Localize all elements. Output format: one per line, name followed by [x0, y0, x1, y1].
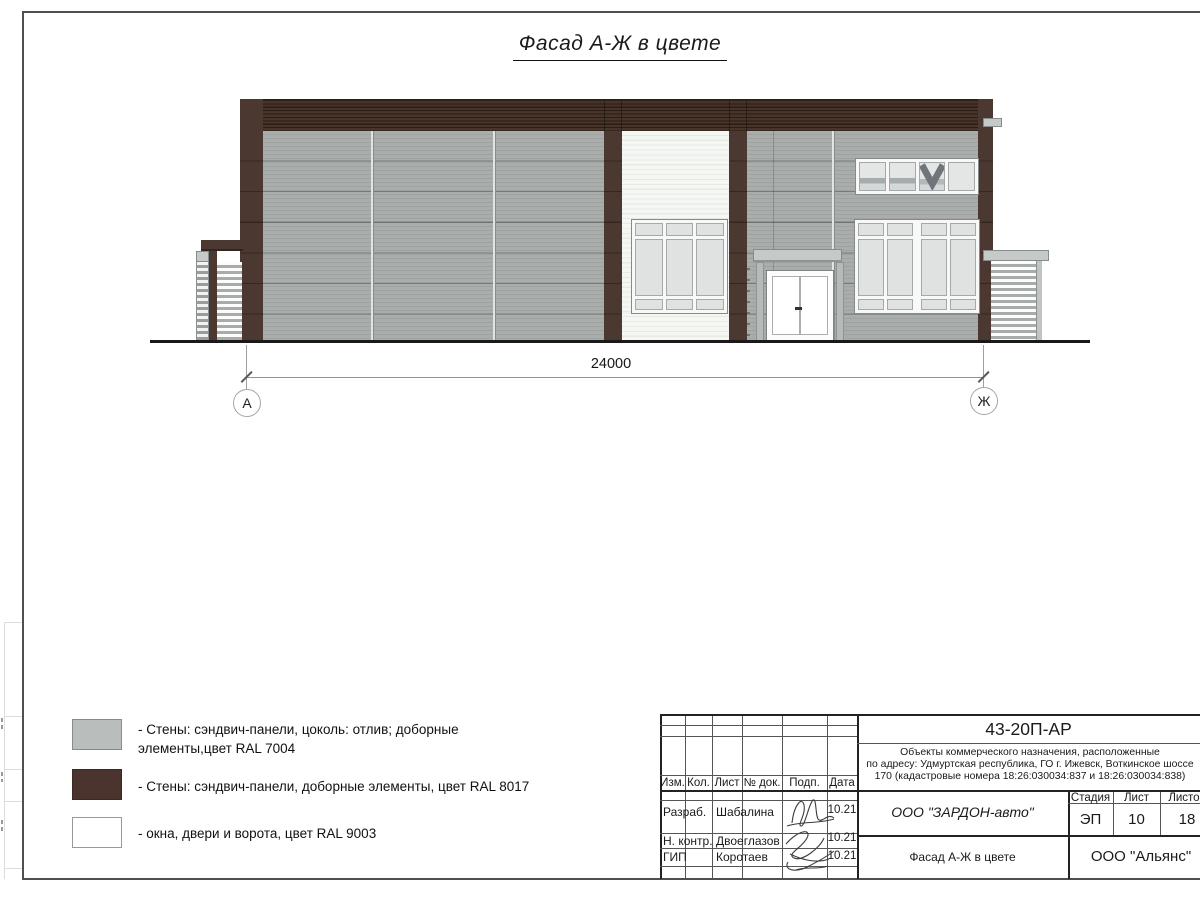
tb-sheets-value: 18 [1160, 811, 1200, 828]
extension-line-left [246, 345, 247, 390]
tb-name-razrab: Шабалина [716, 805, 774, 819]
tb-company: ООО "ЗАРДОН-авто" [857, 804, 1068, 820]
gate-window [631, 219, 728, 314]
pergola-left [195, 239, 265, 342]
tb-sheet-value: 10 [1113, 811, 1160, 828]
tb-project-line3: 170 (кадастровые номера 18:26:030034:837… [857, 771, 1200, 782]
pergola-left-header [196, 251, 209, 262]
door-canopy [753, 249, 842, 262]
tb-doc-code: 43-20П-АР [857, 719, 1200, 740]
tb-project-line1: Объекты коммерческого назначения, распол… [857, 747, 1200, 758]
pergola-right [983, 250, 1049, 342]
tb-col-kol: Кол. [685, 777, 712, 789]
cornice-joint [746, 101, 747, 131]
tb-col-doc: № док. [742, 777, 782, 789]
cornice [240, 99, 993, 131]
legend-swatch-ral7004 [72, 719, 122, 750]
tb-name-nkontr: Двоеглазов [716, 834, 780, 848]
tb-org: ООО "Альянс" [1068, 848, 1200, 865]
canopy-post-right [836, 262, 844, 341]
pergola-left-cap [201, 240, 243, 251]
tb-drawing-name: Фасад А-Ж в цвете [857, 850, 1068, 864]
door-marks [747, 268, 750, 338]
tb-stage-value: ЭП [1068, 811, 1113, 828]
legend-label-ral9003: - окна, двери и ворота, цвет RAL 9003 [138, 825, 568, 844]
roof-flashing [983, 118, 1002, 127]
tb-sheets-label: Листов [1160, 792, 1200, 804]
tb-role-nkontr: Н. контр. [663, 834, 713, 848]
wall-divider [493, 131, 496, 341]
door-leaf-left [772, 276, 800, 335]
pergola-right-slats [991, 261, 1038, 341]
tb-name-gip: Коротаев [716, 850, 768, 864]
ribbon-window [855, 158, 979, 195]
glass-reflection-v [920, 163, 945, 190]
column-mid-right [729, 131, 747, 341]
axis-label-zh: Ж [978, 393, 991, 409]
wall-panel-left [263, 131, 604, 341]
ground-line [150, 340, 1090, 343]
tb-role-gip: ГИП [663, 850, 687, 864]
tb-col-data: Дата [827, 777, 857, 789]
cornice-joint [729, 101, 730, 131]
tb-col-izm: Изм. [660, 777, 685, 789]
pergola-left-post [209, 251, 217, 341]
wall-divider [371, 131, 374, 341]
tb-role-razrab: Разраб. [663, 805, 706, 819]
door-handle-icon [795, 307, 802, 310]
legend-swatch-ral9003 [72, 817, 122, 848]
axis-label-a: А [242, 395, 251, 411]
cornice-joint [621, 101, 622, 131]
main-window-right [854, 219, 980, 314]
tb-stage-label: Стадия [1068, 792, 1113, 804]
legend-label-ral8017: - Стены: сэндвич-панели, доборные элемен… [138, 778, 568, 797]
canopy-post-left [756, 262, 764, 341]
pergola-right-post [1036, 261, 1042, 341]
legend-swatch-ral8017 [72, 769, 122, 800]
pergola-left-slats [217, 262, 242, 341]
dimension-label: 24000 [561, 356, 661, 372]
dimension-line [246, 377, 984, 378]
legend-label-ral7004: - Стены: сэндвич-панели, цоколь: отлив; … [138, 721, 473, 759]
door-leaf-right [800, 276, 828, 335]
tb-project-line2: по адресу: Удмуртская республика, ГО г. … [857, 759, 1200, 770]
cornice-joint [604, 101, 605, 131]
pergola-left-slat-ends [196, 262, 209, 341]
extension-line-right [983, 345, 984, 388]
pergola-right-cap [983, 250, 1049, 261]
tb-sheet-label: Лист [1113, 792, 1160, 804]
drawing-sheet: { "title": "Фасад А-Ж в цвете", "dimensi… [0, 0, 1200, 900]
tb-col-list: Лист [712, 777, 742, 789]
entrance-door [766, 270, 834, 341]
signature-gip [776, 826, 838, 874]
column-mid-left [604, 131, 622, 341]
tb-col-podp: Подп. [782, 777, 827, 789]
axis-marker-a: А [233, 389, 261, 417]
axis-marker-zh: Ж [970, 387, 998, 415]
